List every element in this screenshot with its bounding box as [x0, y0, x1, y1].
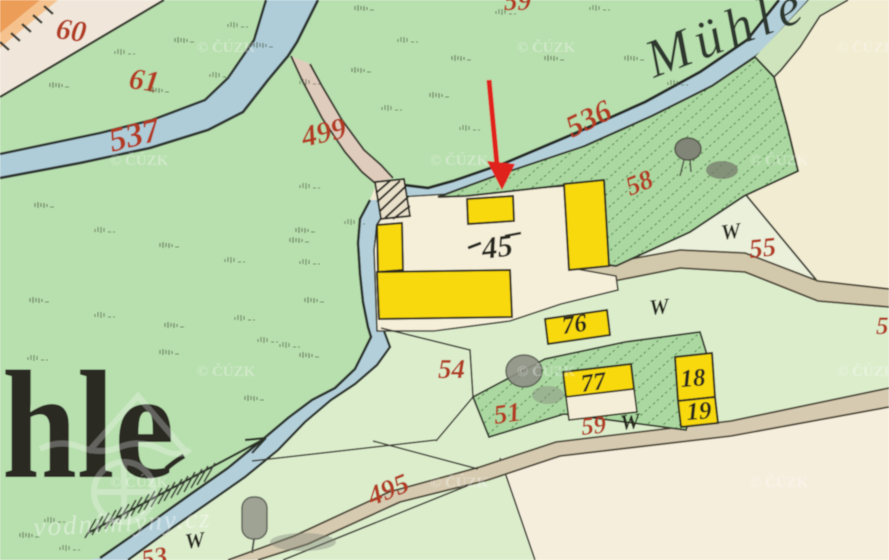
svg-text:55: 55 [747, 231, 777, 264]
svg-text:51: 51 [492, 396, 523, 429]
svg-text:5: 5 [876, 313, 889, 340]
svg-text:19: 19 [686, 397, 713, 426]
svg-text:© ČÚZK: © ČÚZK [110, 474, 169, 491]
svg-text:45: 45 [479, 227, 515, 266]
svg-text:76: 76 [560, 310, 589, 340]
svg-text:© ČÚZK: © ČÚZK [517, 39, 576, 56]
svg-text:© ČÚZK: © ČÚZK [430, 152, 489, 169]
svg-text:© ČÚZK: © ČÚZK [110, 152, 169, 169]
svg-text:18: 18 [680, 364, 707, 393]
svg-text:© ČÚZK: © ČÚZK [197, 39, 256, 56]
svg-text:© ČÚZK: © ČÚZK [837, 39, 889, 56]
svg-text:53: 53 [139, 541, 170, 560]
svg-text:© ČÚZK: © ČÚZK [837, 363, 889, 380]
svg-text:54: 54 [438, 354, 465, 384]
svg-text:60: 60 [54, 12, 88, 49]
svg-text:59: 59 [580, 411, 608, 441]
svg-text:61: 61 [127, 62, 161, 99]
svg-text:© ČÚZK: © ČÚZK [750, 474, 809, 491]
svg-text:© ČÚZK: © ČÚZK [750, 152, 809, 169]
svg-text:59: 59 [504, 0, 532, 16]
svg-text:© ČÚZK: © ČÚZK [430, 474, 489, 491]
svg-text:© ČÚZK: © ČÚZK [197, 363, 256, 380]
svg-text:© ČÚZK: © ČÚZK [517, 363, 576, 380]
